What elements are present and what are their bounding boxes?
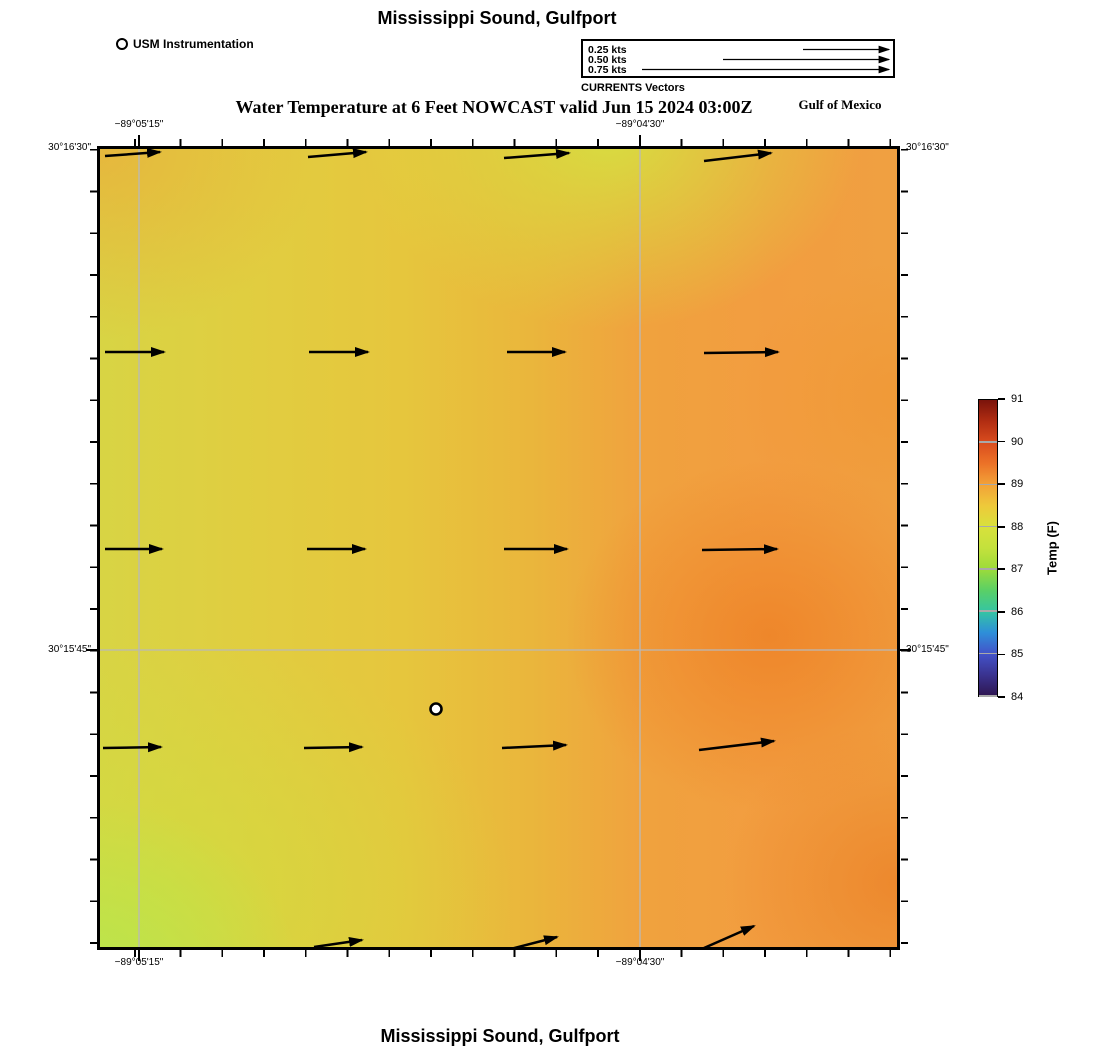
axis-ticks-top xyxy=(100,139,897,146)
currents-legend-box: 0.25 kts 0.50 kts 0.75 kts xyxy=(581,39,895,78)
current-arrow xyxy=(699,741,774,750)
axis-ticks-bottom xyxy=(100,950,897,957)
current-arrow xyxy=(308,152,366,157)
colorbar-title: Temp (F) xyxy=(1045,521,1060,575)
colorbar-gridline xyxy=(979,695,997,697)
current-arrow xyxy=(499,937,557,947)
current-arrow xyxy=(304,747,362,748)
station-marker-icon xyxy=(431,704,442,715)
current-arrow xyxy=(504,153,569,158)
colorbar-tick xyxy=(998,568,1005,570)
forecast-subtitle: Water Temperature at 6 Feet NOWCAST vali… xyxy=(236,97,753,118)
colorbar-tick xyxy=(998,398,1005,400)
current-arrow xyxy=(702,549,777,550)
currents-speed-label-075: 0.75 kts xyxy=(588,65,627,75)
major-tick xyxy=(639,950,641,961)
current-arrow xyxy=(105,152,160,156)
colorbar-tick xyxy=(998,441,1005,443)
lon-label-top-right: −89°04'30" xyxy=(616,119,665,130)
major-tick xyxy=(900,649,911,651)
colorbar-tick xyxy=(998,654,1005,656)
current-arrow xyxy=(314,940,362,947)
colorbar-tick-label: 88 xyxy=(1011,521,1023,533)
major-tick xyxy=(138,950,140,961)
current-arrow xyxy=(704,926,754,947)
colorbar-tick-label: 91 xyxy=(1011,393,1023,405)
page-title-top: Mississippi Sound, Gulfport xyxy=(377,8,616,29)
major-tick xyxy=(138,135,140,146)
colorbar-gridline xyxy=(979,441,997,443)
colorbar-gridline xyxy=(979,653,997,655)
colorbar-gradient xyxy=(979,400,997,696)
colorbar-tick-label: 84 xyxy=(1011,691,1023,703)
colorbar-tick-label: 87 xyxy=(1011,563,1023,575)
currents-legend-arrows xyxy=(583,41,893,76)
lon-label-top-left: −89°05'15" xyxy=(115,119,164,130)
major-tick xyxy=(639,135,641,146)
current-arrow xyxy=(704,153,771,161)
colorbar-gridline xyxy=(979,610,997,612)
axis-ticks-left xyxy=(90,149,97,947)
colorbar-gridline xyxy=(979,484,997,486)
colorbar-tick xyxy=(998,483,1005,485)
currents-caption: CURRENTS Vectors xyxy=(581,82,685,94)
colorbar-gridline xyxy=(979,568,997,570)
usm-marker-icon xyxy=(116,38,128,50)
colorbar xyxy=(978,399,998,697)
lat-label-left-top: 30°16'30" xyxy=(33,142,91,153)
map-svg xyxy=(100,149,897,947)
colorbar-tick xyxy=(998,696,1005,698)
current-arrow xyxy=(502,745,566,748)
current-arrow xyxy=(704,352,778,353)
colorbar-gridline xyxy=(979,526,997,528)
colorbar-tick-label: 90 xyxy=(1011,436,1023,448)
colorbar-tick-label: 86 xyxy=(1011,606,1023,618)
axis-ticks-right xyxy=(901,149,908,947)
map-panel xyxy=(97,146,900,950)
gulf-of-mexico-label: Gulf of Mexico xyxy=(798,97,881,113)
plot-canvas: Mississippi Sound, Gulfport USM Instrume… xyxy=(0,0,1100,1050)
page-title-bottom: Mississippi Sound, Gulfport xyxy=(380,1026,619,1047)
colorbar-tick xyxy=(998,526,1005,528)
lat-label-left-bottom: 30°15'45" xyxy=(33,644,91,655)
colorbar-tick-label: 89 xyxy=(1011,478,1023,490)
lat-label-right-top: 30°16'30" xyxy=(906,142,949,153)
lat-label-right-bottom: 30°15'45" xyxy=(906,644,949,655)
colorbar-tick xyxy=(998,611,1005,613)
usm-legend-label: USM Instrumentation xyxy=(133,37,254,51)
colorbar-tick-label: 85 xyxy=(1011,648,1023,660)
major-tick xyxy=(86,649,97,651)
current-arrow xyxy=(103,747,161,748)
